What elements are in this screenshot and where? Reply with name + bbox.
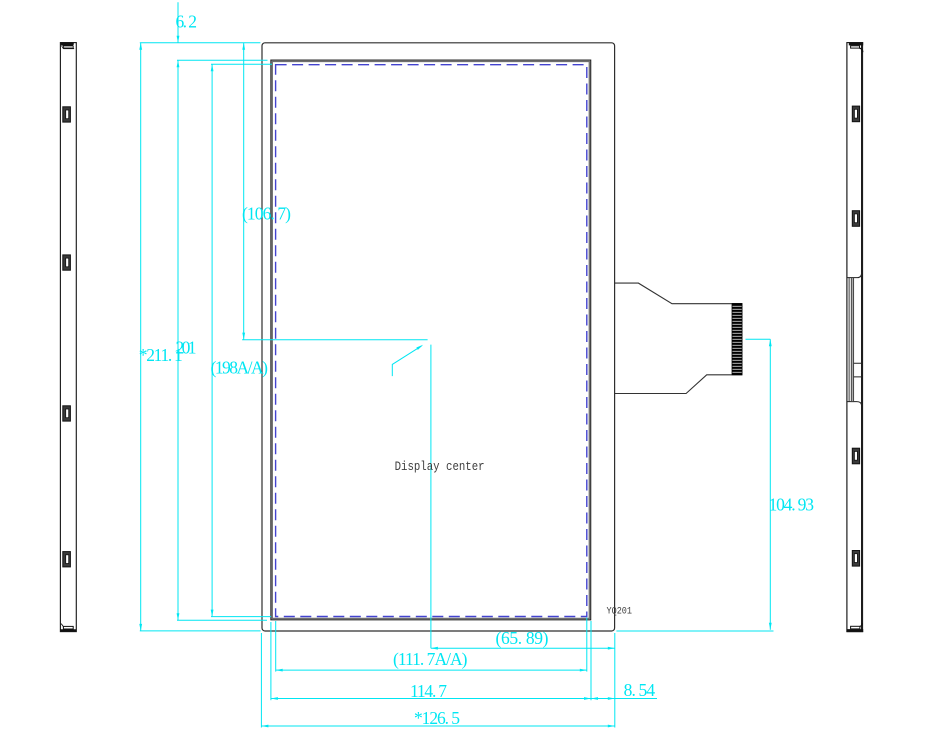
svg-text:Display center: Display center [395,460,485,474]
svg-text:201: 201 [176,338,197,358]
svg-text:114. 7: 114. 7 [410,681,447,701]
svg-text:8. 54: 8. 54 [624,680,656,700]
svg-text:(106. 7): (106. 7) [242,204,291,224]
svg-text:YQ201: YQ201 [607,606,633,618]
svg-text:(65. 89): (65. 89) [496,628,549,648]
svg-text:*126. 5: *126. 5 [414,708,460,728]
svg-text:(198A/A): (198A/A) [211,358,269,378]
svg-text:(111. 7A/A): (111. 7A/A) [393,649,468,669]
svg-text:6. 2: 6. 2 [176,12,198,32]
svg-text:104. 93: 104. 93 [769,495,815,515]
